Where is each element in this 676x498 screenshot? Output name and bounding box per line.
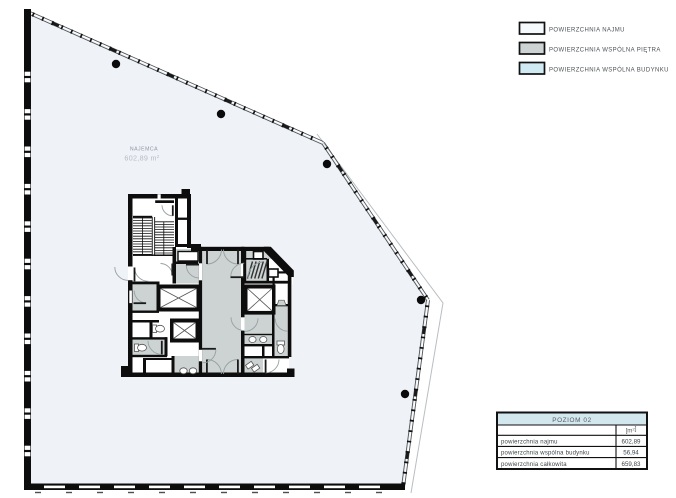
svg-text:56,94: 56,94 [623, 450, 639, 457]
svg-text:602,89 m2: 602,89 m2 [124, 154, 159, 163]
svg-text:POWIERZCHNIA NAJMU: POWIERZCHNIA NAJMU [549, 28, 625, 34]
svg-text:659,83: 659,83 [622, 461, 641, 468]
svg-text:powierzchnia wspólna budynku: powierzchnia wspólna budynku [501, 451, 590, 457]
svg-text:NAJEMCA: NAJEMCA [130, 147, 158, 153]
svg-text:powierzchnia całkowita: powierzchnia całkowita [501, 462, 567, 468]
svg-text:powierzchnia najmu: powierzchnia najmu [501, 439, 558, 445]
svg-text:602,89: 602,89 [622, 438, 641, 445]
svg-text:POWIERZCHNIA WSPÓLNA BUDYNKU: POWIERZCHNIA WSPÓLNA BUDYNKU [549, 67, 669, 74]
svg-text:POWIERZCHNIA WSPÓLNA PIĘTRA: POWIERZCHNIA WSPÓLNA PIĘTRA [549, 47, 661, 54]
svg-text:POZIOM 02: POZIOM 02 [552, 417, 592, 424]
